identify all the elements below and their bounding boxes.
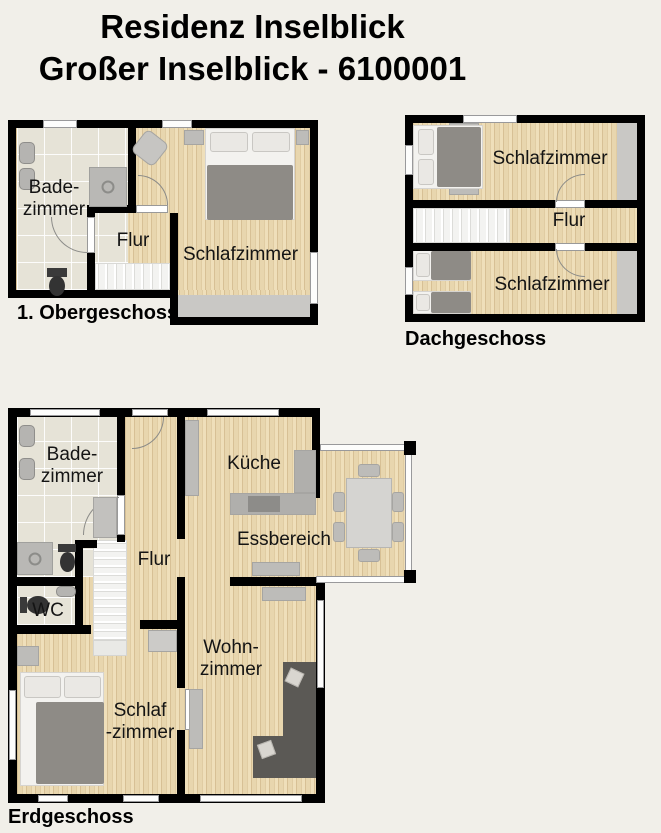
room-label-flur-og: Flur [104,230,162,252]
nightstand [17,646,39,666]
kitchen-cabinet [185,420,199,496]
dining-table [346,478,392,548]
stairs-og [95,263,170,290]
pillow [252,132,290,152]
room-label-flur-dg: Flur [539,210,599,232]
blanket [431,292,471,313]
room-label-line: zimmer [41,466,103,487]
toilet [20,597,27,613]
bay-window-wall [320,444,406,451]
room-label-wc: WC [28,600,68,622]
pillow [416,294,430,311]
floor-plan-dachgeschoss: Schlafzimmer Flur Schlafzimmer Dachgesch… [405,115,645,360]
room-label-line: zimmer [23,199,85,220]
wall [230,577,316,586]
wall [177,577,185,688]
knee-wall-strip [617,123,637,200]
nightstand [184,130,204,145]
wall [405,115,645,123]
floor-label-obergeschoss: 1. Obergeschoss [17,302,178,325]
chair [333,522,345,542]
room-label-line: Bade- [29,177,80,198]
balcony-strip-og [178,295,310,317]
window [162,120,192,128]
wall [405,243,555,251]
floor-plan-erdgeschoss: Bade- zimmer Küche Essbereich Flur WC Wo… [8,408,428,833]
page-title-line1: Residenz Inselblick [0,6,505,48]
floor-label-erdgeschoss: Erdgeschoss [8,806,134,829]
pillow [418,129,434,155]
bay-window-wall [316,576,406,583]
floor-label-dachgeschoss: Dachgeschoss [405,328,546,351]
sideboard [252,562,300,576]
wall [8,625,91,634]
window [123,795,159,802]
sink [56,586,76,597]
room-label-badezimmer-og: Bade- zimmer [12,177,96,221]
door-badezimmer-og [87,217,95,253]
page-title-line2: Großer Inselblick - 6100001 [0,48,505,90]
wall [140,620,177,629]
bay-window-wall [405,444,412,583]
bay-corner-post [404,570,416,583]
room-label-badezimmer-eg: Bade- zimmer [22,444,122,488]
wall [177,417,185,539]
toilet [49,276,65,296]
stairs-dg [413,208,510,243]
wall [405,314,645,322]
blanket [207,165,293,220]
cooktop [248,496,280,512]
bath-cabinet [93,497,117,538]
wall [87,253,95,290]
window [463,115,517,123]
pillow [418,159,434,185]
pillow [210,132,248,152]
wall [128,120,136,207]
shower [17,542,53,575]
chair [392,492,404,512]
entrance-door [132,409,168,416]
wardrobe [148,630,177,652]
room-label-line: Bade- [47,444,98,465]
tv-sideboard [189,689,203,749]
wall [117,535,125,542]
toilet [58,544,76,552]
door-schlafzimmer-og [136,205,168,213]
chair [333,492,345,512]
room-label-essbereich: Essbereich [234,529,334,551]
window [207,409,279,416]
window [200,795,302,802]
wall [585,200,645,208]
room-label-schlafzimmer-eg: Schlaf -zimmer [90,700,190,744]
pillow [416,253,430,277]
floor-plan-obergeschoss: Bade- zimmer Flur Schlafzimmer 1. Oberge… [8,120,318,330]
window [38,795,68,802]
window [310,252,318,304]
room-label-line: -zimmer [106,722,175,743]
room-label-line: Schlaf [114,700,167,721]
window [317,600,324,688]
room-label-line: Wohn- [203,637,259,658]
wall [75,540,83,634]
room-label-schlafzimmer-dg-top: Schlafzimmer [480,148,620,170]
blanket [431,251,471,280]
sink [19,142,35,164]
bay-corner-post [404,441,416,455]
wall [637,115,645,322]
room-label-wohnzimmer: Wohn- zimmer [188,637,274,681]
stairs-eg [93,540,127,640]
wall [170,317,318,325]
room-label-flur-eg: Flur [124,549,184,571]
room-label-schlafzimmer-og: Schlafzimmer [173,244,308,266]
window [405,267,413,295]
chair [358,549,380,562]
floorplan-page: Residenz Inselblick Großer Inselblick - … [0,0,661,833]
wall [405,200,555,208]
toilet [60,552,75,572]
pillow [64,676,101,698]
chair [358,464,380,477]
room-label-line: zimmer [200,659,262,680]
window [9,690,16,760]
room-label-kueche: Küche [204,453,304,475]
wall [585,243,645,251]
pillow [24,676,61,698]
nightstand [296,130,309,145]
window [43,120,77,128]
room-label-schlafzimmer-dg-bottom: Schlafzimmer [482,274,622,296]
blanket [437,127,481,187]
chair [392,522,404,542]
wall [8,577,83,586]
wall [8,290,178,298]
stair-landing [93,640,127,656]
sideboard [262,587,306,601]
window [30,409,100,416]
window [405,145,413,175]
